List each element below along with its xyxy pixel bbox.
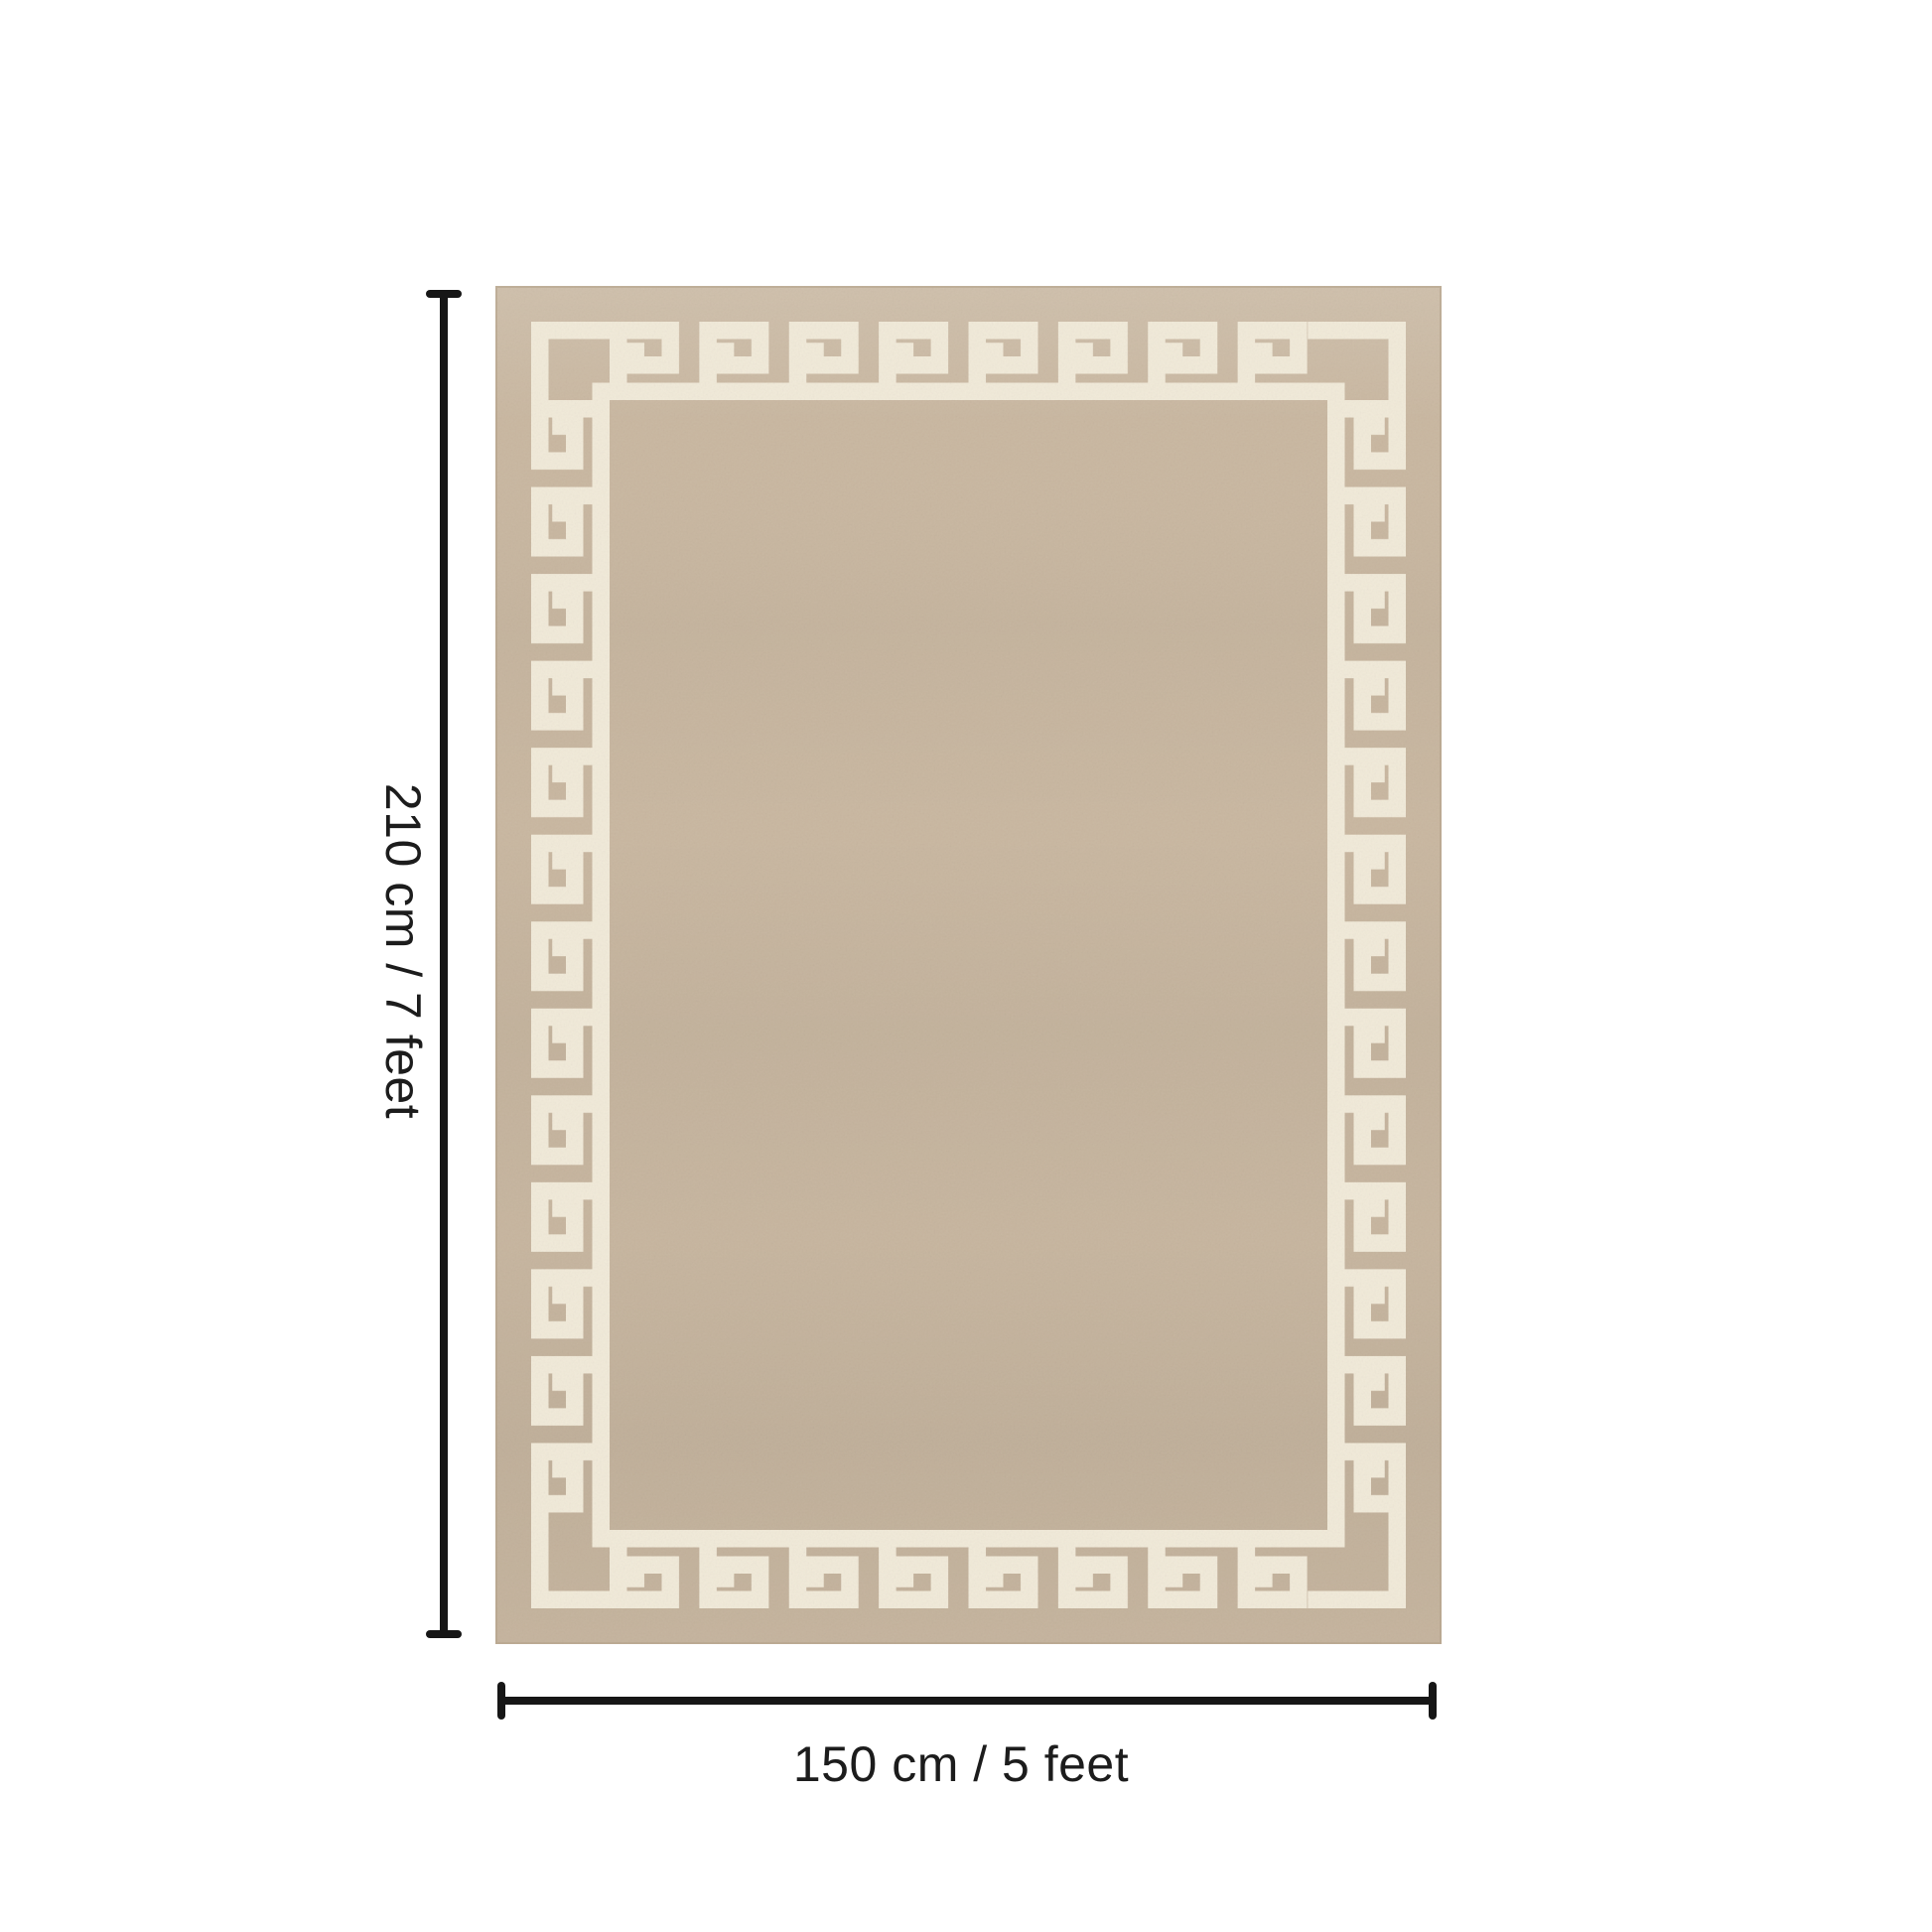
rug-graphic xyxy=(495,286,1442,1644)
width-dimension-label: 150 cm / 5 feet xyxy=(663,1734,1259,1794)
rug-texture xyxy=(495,286,1442,1644)
rug-image xyxy=(495,286,1442,1644)
width-dimension-line xyxy=(501,1686,1433,1716)
height-dimension-label: 210 cm / 7 feet xyxy=(373,653,433,1249)
height-dimension-line xyxy=(430,294,458,1634)
rug-dimension-diagram: 210 cm / 7 feet 150 cm / 5 feet xyxy=(0,0,1932,1932)
